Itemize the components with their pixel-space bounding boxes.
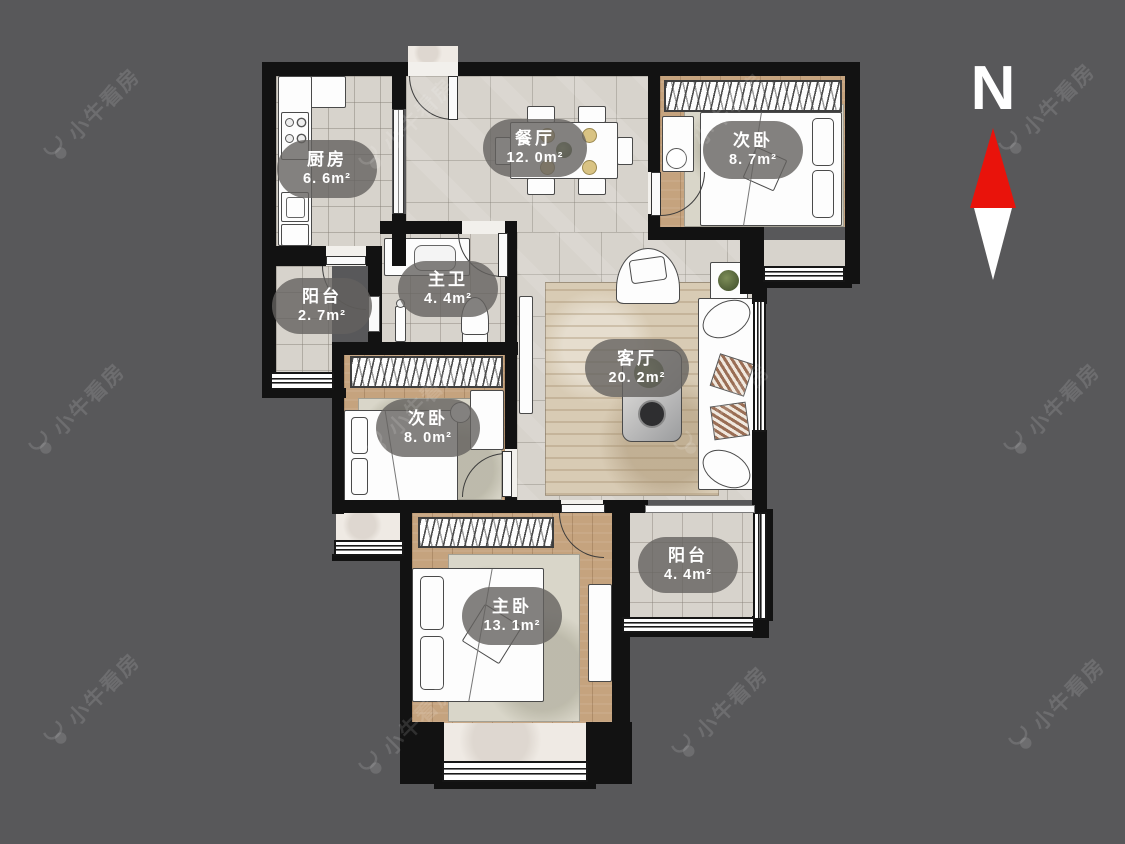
bedroom-top-door-leaf	[651, 172, 661, 216]
room-name: 厨房	[307, 151, 347, 170]
bedroom-mid-door-leaf	[502, 451, 512, 497]
stove-burner	[285, 118, 294, 127]
bull-logo-icon	[39, 131, 76, 168]
wall	[434, 781, 596, 789]
room-label-living: 客厅 20. 2m²	[585, 339, 689, 397]
window	[753, 512, 767, 620]
window	[622, 617, 755, 633]
window	[763, 266, 845, 282]
alcove-floor	[763, 240, 845, 268]
wall	[262, 62, 408, 76]
window	[270, 372, 334, 390]
wall	[603, 500, 648, 513]
room-label-master-bath: 主卫 4. 4m²	[398, 261, 498, 317]
room-area: 12. 0m²	[507, 150, 564, 166]
dining-chair	[617, 137, 633, 165]
wall	[262, 62, 276, 396]
watermark-text: 小牛看房	[1015, 56, 1101, 142]
pillow	[420, 576, 444, 630]
bull-logo-icon	[39, 716, 76, 753]
floor-plan-image: 厨房 6. 6m² 餐厅 12. 0m² 次卧 8. 7m² 阳台 2. 7m²…	[0, 0, 1125, 844]
door-opening	[408, 62, 458, 76]
wall	[380, 221, 462, 234]
balcony-door-leaf	[326, 256, 366, 265]
compass-north-label: N	[960, 58, 1026, 120]
wall	[392, 62, 406, 109]
watermark-text: 小牛看房	[1025, 651, 1111, 737]
wall	[845, 62, 860, 284]
room-name: 主卧	[492, 598, 532, 617]
tv-console	[519, 296, 533, 414]
master-door-leaf	[561, 504, 605, 513]
console-master	[588, 584, 612, 682]
watermark: 小牛看房	[23, 356, 132, 465]
bath-door-leaf	[498, 233, 508, 277]
window	[334, 540, 404, 556]
room-area: 8. 7m²	[729, 152, 777, 168]
room-name: 客厅	[617, 350, 657, 369]
room-area: 6. 6m²	[303, 171, 351, 187]
watermark-text: 小牛看房	[60, 646, 146, 732]
wall	[766, 509, 773, 621]
wall	[752, 430, 767, 512]
wall	[648, 62, 660, 172]
entry-threshold	[408, 46, 458, 63]
room-area: 20. 2m²	[609, 370, 666, 386]
room-area: 4. 4m²	[424, 291, 472, 307]
bull-logo-icon	[354, 746, 391, 783]
wall	[332, 500, 561, 513]
watermark-text: 小牛看房	[1020, 356, 1106, 442]
wall	[758, 281, 852, 288]
room-label-dining: 餐厅 12. 0m²	[483, 119, 587, 177]
watermark: 小牛看房	[1003, 651, 1112, 760]
watermark: 小牛看房	[38, 646, 147, 755]
room-area: 8. 0m²	[404, 430, 452, 446]
wardrobe-master	[418, 517, 554, 548]
room-label-master-bedroom: 主卧 13. 1m²	[462, 587, 562, 645]
bull-logo-icon	[667, 729, 704, 766]
kitchen-cabinet	[281, 224, 309, 246]
room-name: 阳台	[302, 288, 342, 307]
room-area: 13. 1m²	[484, 618, 541, 634]
bull-logo-icon	[24, 426, 61, 463]
dining-chair	[527, 178, 555, 195]
stove-burner	[285, 134, 294, 143]
room-area: 4. 4m²	[664, 567, 712, 583]
dining-chair	[578, 106, 606, 123]
plant	[718, 270, 739, 291]
compass-needle-south-icon	[974, 208, 1012, 280]
window	[442, 761, 588, 782]
watermark-text: 小牛看房	[688, 659, 774, 745]
plate	[582, 160, 597, 175]
shower-mixer	[395, 306, 406, 342]
watermark: 小牛看房	[666, 659, 775, 768]
bull-logo-icon	[1004, 721, 1041, 758]
watermark-text: 小牛看房	[60, 61, 146, 147]
room-label-balcony-bottom: 阳台 4. 4m²	[638, 537, 738, 593]
wall	[332, 342, 344, 514]
room-name: 次卧	[733, 132, 773, 151]
room-area: 2. 7m²	[298, 308, 346, 324]
dining-chair	[578, 178, 606, 195]
balcony-door-frame	[645, 505, 755, 513]
wall	[262, 246, 326, 266]
room-name: 餐厅	[515, 130, 555, 149]
room-label-balcony-left: 阳台 2. 7m²	[272, 278, 372, 334]
tray	[638, 400, 666, 428]
armchair-pillow	[629, 256, 668, 285]
bull-logo-icon	[999, 426, 1036, 463]
watermark-text: 小牛看房	[45, 356, 131, 442]
bay-window-floor-master	[442, 723, 588, 765]
pillow	[812, 118, 834, 166]
room-name: 阳台	[668, 547, 708, 566]
wall	[332, 342, 518, 355]
room-name: 主卫	[428, 271, 468, 290]
pillow	[351, 458, 368, 495]
wall	[586, 722, 632, 784]
bay-window-floor-mid	[336, 513, 402, 543]
pillow	[812, 170, 834, 218]
watermark: 小牛看房	[998, 356, 1107, 465]
kitchen-sink-basin	[286, 197, 305, 218]
watermark: 小牛看房	[38, 61, 147, 170]
